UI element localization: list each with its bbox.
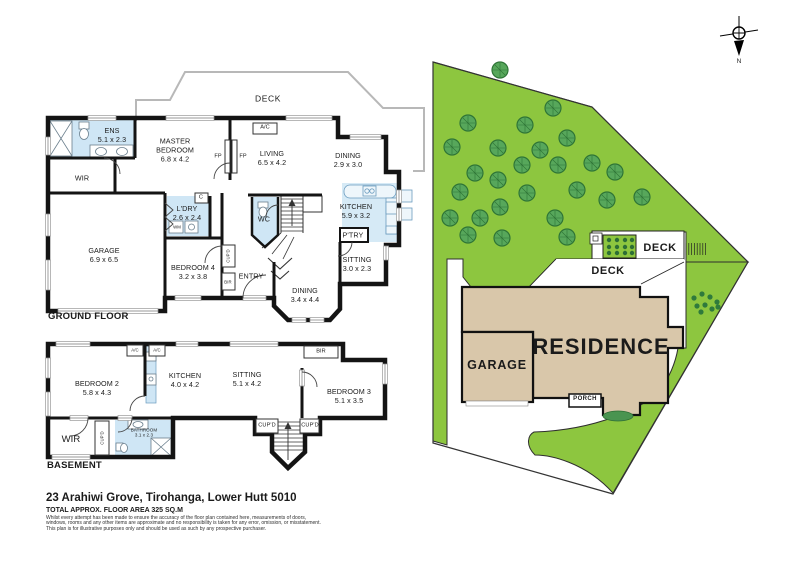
- site-porch-label: PORCH: [573, 396, 597, 404]
- cooktop-icon: [386, 202, 397, 214]
- bush-icon: [714, 299, 719, 304]
- fireplace-box: [232, 140, 237, 173]
- wir-label-b: WIR: [62, 434, 81, 446]
- tree-icon: [472, 210, 488, 226]
- room-label-sitting: SITTING 3.0 x 2.3: [342, 255, 371, 273]
- cupboard-label: CUP'D: [225, 249, 230, 263]
- floorplan-page: GROUND FLOOR BASEMENT 23 Arahiwi Grove, …: [0, 0, 800, 565]
- tree-icon: [442, 210, 458, 226]
- site-deck-upper-label: DECK: [643, 242, 676, 256]
- tree-icon: [559, 130, 575, 146]
- tree-icon: [514, 157, 530, 173]
- deck-label: DECK: [255, 94, 281, 105]
- site-deck-lower-label: DECK: [591, 265, 624, 279]
- door-swing: [104, 158, 120, 174]
- tree-icon: [550, 157, 566, 173]
- cupboard-label-b2: CUP'D: [258, 422, 275, 429]
- wir-label: WIR: [75, 173, 89, 182]
- bush-icon: [694, 303, 699, 308]
- tree-icon: [494, 230, 510, 246]
- room-label-bedroom2: BEDROOM 2 5.8 x 4.3: [75, 379, 119, 397]
- room-label-living: LIVING 6.5 x 4.2: [258, 149, 286, 167]
- site-residence-label: RESIDENCE: [532, 333, 669, 361]
- tree-icon: [452, 184, 468, 200]
- tree-icon: [547, 210, 563, 226]
- tree-icon: [634, 189, 650, 205]
- ground-floor-plan: [48, 72, 424, 320]
- tree-icon: [467, 165, 483, 181]
- room-label-bedroom4: BEDROOM 4 3.2 x 3.8: [171, 263, 215, 281]
- room-label-bedroom3: BEDROOM 3 5.1 x 3.5: [327, 387, 371, 405]
- tree-icon: [490, 140, 506, 156]
- bush-icon: [691, 295, 696, 300]
- compass-north-label: N: [737, 58, 742, 66]
- tree-icon: [492, 62, 508, 78]
- tree-icon: [584, 155, 600, 171]
- bir-label-b: BIR: [316, 348, 326, 355]
- garage-door-site: [466, 401, 528, 406]
- basement-plan: [48, 344, 385, 468]
- tree-icon: [545, 100, 561, 116]
- room-label-master-bedroom: MASTER BEDROOM 6.8 x 4.2: [156, 136, 194, 163]
- entry-label: ENTRY: [239, 271, 264, 280]
- tree-icon: [517, 117, 533, 133]
- bush-icon: [709, 306, 714, 311]
- room-label-garage: GARAGE 6.9 x 6.5: [88, 246, 119, 264]
- tree-icon: [532, 142, 548, 158]
- tree-icon: [599, 192, 615, 208]
- wc-label: WC: [258, 214, 270, 223]
- room-label-kitchen: KITCHEN 5.9 x 3.2: [340, 202, 372, 220]
- pantry-label: P'TRY: [343, 230, 364, 239]
- hedge: [603, 411, 633, 421]
- tree-icon: [460, 227, 476, 243]
- bush-icon: [702, 302, 707, 307]
- ac-label-b2: A/C: [153, 347, 160, 352]
- tree-icon: [519, 185, 535, 201]
- tree-icon: [490, 172, 506, 188]
- toilet-icon: [121, 444, 128, 453]
- bush-icon: [699, 291, 704, 296]
- floor-area: TOTAL APPROX. FLOOR AREA 325 SQ.M: [46, 507, 183, 514]
- tree-icon: [492, 199, 508, 215]
- ac-label-b1: A/C: [131, 347, 138, 352]
- fireplace-box: [225, 140, 230, 173]
- room-label-dining-main: DINING 3.4 x 4.4: [291, 286, 319, 304]
- cupboard-label-b1: CUP'D: [99, 431, 104, 445]
- basement-title: BASEMENT: [47, 460, 102, 472]
- room-label-bathroom: BATHROOM 3.1 x 2.3: [131, 428, 157, 439]
- tree-icon: [569, 182, 585, 198]
- address: 23 Arahiwi Grove, Tirohanga, Lower Hutt …: [46, 492, 297, 504]
- room-label-dining-small: DINING 2.9 x 3.0: [334, 151, 362, 169]
- bush-icon: [715, 304, 720, 309]
- cupboard-label-b3: CUP'D: [301, 422, 318, 429]
- room-label-kitchen-b: KITCHEN 4.0 x 4.2: [169, 371, 201, 389]
- washing-machine-label: WM: [173, 224, 181, 229]
- tree-icon: [559, 229, 575, 245]
- site-plan: [433, 16, 758, 494]
- room-label-laundry: L'DRY 2.6 x 2.4: [173, 204, 201, 222]
- fireplace-label-1: FP: [214, 153, 221, 160]
- room-label-sitting-b: SITTING 5.1 x 4.2: [232, 370, 261, 388]
- bush-icon: [707, 294, 712, 299]
- dishwasher-icon: [386, 226, 397, 234]
- site-garage-label: GARAGE: [467, 358, 527, 374]
- ground-floor-title: GROUND FLOOR: [48, 311, 129, 323]
- tree-icon: [607, 164, 623, 180]
- door-swing: [130, 396, 145, 411]
- plan-graphics: [0, 0, 800, 565]
- tree-icon: [444, 139, 460, 155]
- ac-label: A/C: [260, 124, 270, 131]
- toilet-icon: [79, 122, 89, 129]
- fireplace-label-2: FP: [239, 153, 246, 160]
- bush-icon: [698, 309, 703, 314]
- disclaimer: Whilst every attempt has been made to en…: [46, 516, 321, 532]
- tree-icon: [460, 115, 476, 131]
- north-compass-icon: [720, 16, 758, 56]
- door-swing: [205, 246, 222, 263]
- bir-label: BIR: [224, 279, 231, 284]
- room-label-ens: ENS 5.1 x 2.3: [98, 126, 126, 144]
- cupboard-c-label: C: [199, 194, 203, 201]
